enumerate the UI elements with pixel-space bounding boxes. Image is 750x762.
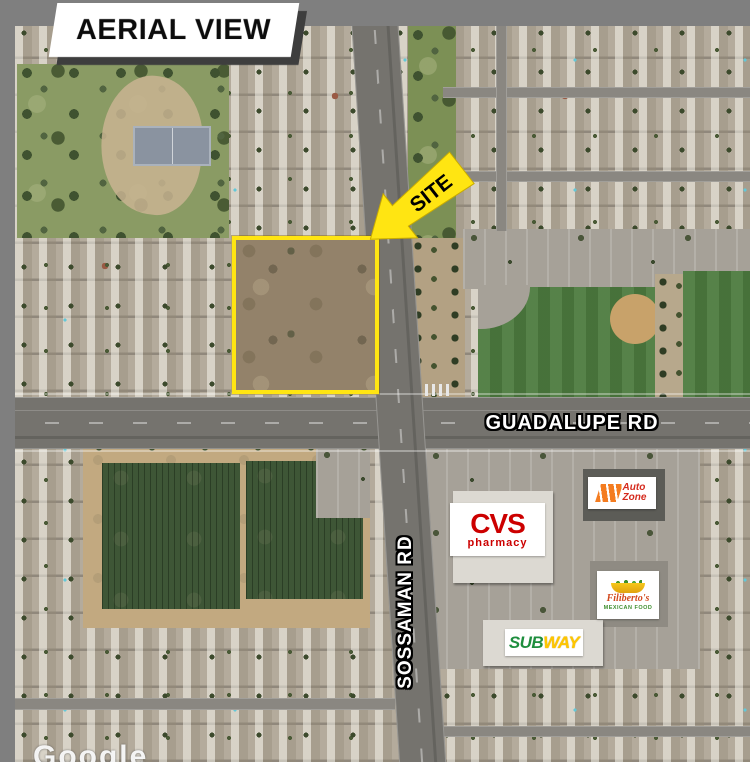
street: [443, 87, 750, 98]
autozone-name-line2: Zone: [623, 493, 647, 503]
street: [443, 171, 750, 182]
subway-name-part2: WAY: [543, 633, 579, 653]
subway-logo: SUB WAY: [505, 629, 583, 656]
guadalupe-road-label: GUADALUPE RD: [462, 412, 682, 435]
sidewalk: [15, 393, 750, 395]
sidewalk: [15, 450, 750, 452]
watermark: Google: [33, 740, 148, 762]
filibertos-tagline: MEXICAN FOOD: [604, 605, 653, 611]
baseball-diamond: [610, 294, 660, 344]
filibertos-name: Filiberto's: [607, 594, 650, 604]
street: [15, 698, 395, 710]
soccer-field: [683, 271, 750, 399]
site-parcel: [232, 236, 379, 394]
crop-field-west: [102, 463, 240, 609]
street: [496, 26, 507, 231]
road-marking: [425, 384, 451, 396]
ballpark-path: [655, 274, 683, 399]
farm-notch-lot: [316, 446, 370, 518]
cvs-logo: CVS pharmacy: [450, 503, 545, 556]
cvs-name: CVS: [470, 511, 525, 537]
page-title: AERIAL VIEW: [76, 14, 271, 47]
filibertos-logo: Filiberto's MEXICAN FOOD: [597, 571, 659, 619]
autozone-slash-icon: [595, 484, 623, 502]
aerial-view-page: GUADALUPE RD SOSSAMAN RD SITE CVS pharma…: [0, 0, 750, 762]
taco-icon: [611, 580, 645, 593]
cvs-tagline: pharmacy: [468, 537, 528, 549]
aerial-map: GUADALUPE RD SOSSAMAN RD SITE CVS pharma…: [15, 26, 750, 762]
basketball-court: [133, 126, 211, 166]
subway-name-part1: SUB: [509, 633, 543, 653]
sossaman-road-label: SOSSAMAN RD: [395, 517, 421, 707]
street: [435, 726, 750, 737]
title-banner: AERIAL VIEW: [49, 3, 300, 57]
autozone-logo: Auto Zone: [588, 477, 656, 509]
